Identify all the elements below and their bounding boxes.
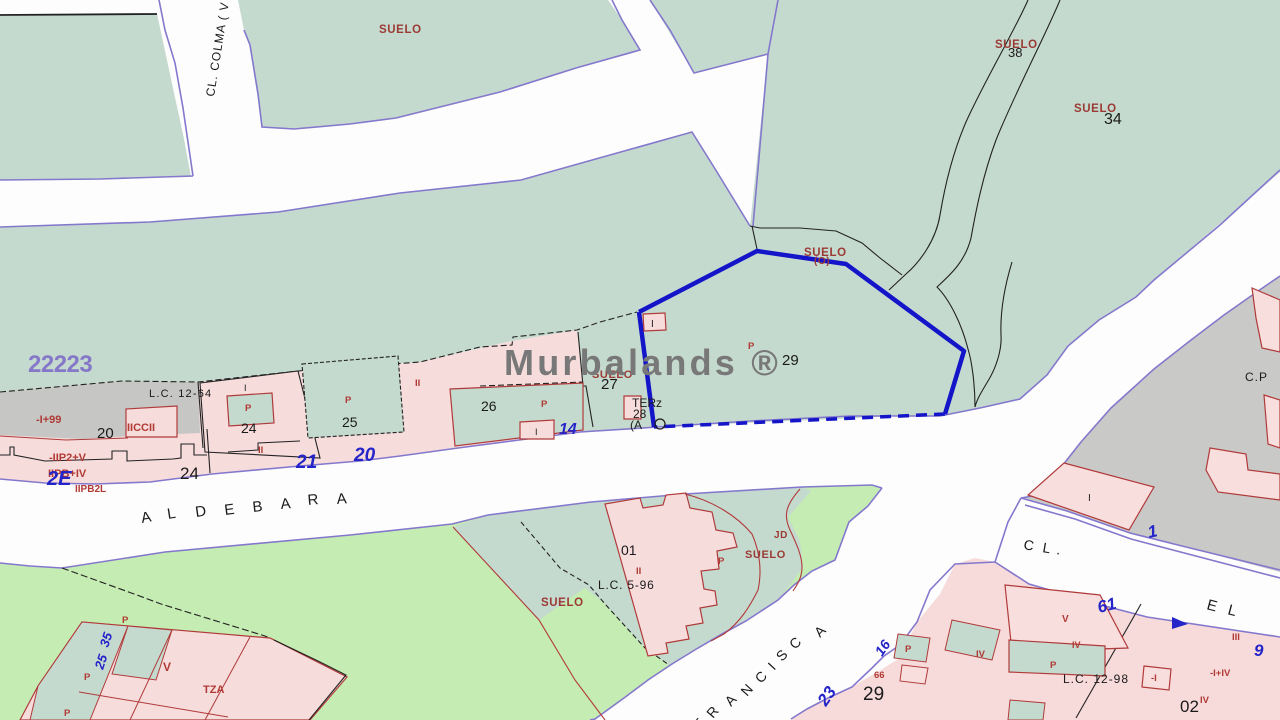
svg-text:II: II: [258, 445, 263, 456]
svg-text:TZA: TZA: [203, 684, 224, 696]
svg-text:II: II: [636, 566, 641, 577]
svg-text:P: P: [541, 399, 548, 410]
svg-text:A: A: [336, 490, 347, 508]
svg-text:02: 02: [1180, 697, 1199, 716]
svg-text:25: 25: [342, 414, 358, 430]
svg-text:SUELO: SUELO: [379, 24, 422, 36]
svg-text:P: P: [122, 615, 129, 626]
svg-text:P: P: [718, 556, 725, 567]
svg-text:SUELO: SUELO: [541, 597, 584, 609]
svg-text:IV: IV: [1200, 695, 1210, 706]
svg-text:34: 34: [1104, 111, 1122, 128]
svg-text:V: V: [163, 660, 171, 674]
svg-text:29: 29: [863, 684, 884, 705]
svg-text:20: 20: [353, 445, 376, 466]
svg-text:38: 38: [1008, 45, 1022, 60]
svg-text:V: V: [1062, 614, 1069, 625]
svg-text:L.C. 12-64: L.C. 12-64: [149, 388, 212, 400]
svg-text:P: P: [905, 644, 912, 655]
svg-text:B: B: [252, 498, 264, 516]
svg-text:I: I: [1088, 493, 1091, 504]
svg-text:P: P: [345, 395, 352, 406]
svg-text:14: 14: [559, 421, 577, 438]
svg-text:III: III: [1232, 632, 1240, 643]
svg-text:-I+IV: -I+IV: [1210, 668, 1231, 679]
svg-text:-I: -I: [1151, 673, 1157, 684]
svg-text:29: 29: [782, 352, 799, 369]
svg-text:I: I: [535, 427, 538, 437]
svg-text:2E: 2E: [46, 468, 72, 490]
svg-text:20: 20: [97, 425, 114, 442]
svg-text:P: P: [84, 672, 91, 683]
svg-text:JD: JD: [774, 530, 788, 541]
svg-text:21: 21: [295, 452, 317, 473]
svg-text:24: 24: [180, 464, 199, 483]
svg-text:Murbalands ®: Murbalands ®: [504, 342, 781, 383]
svg-text:22223: 22223: [28, 351, 92, 378]
svg-text:L.C. 5-96: L.C. 5-96: [598, 578, 655, 592]
svg-text:L.C. 12-98: L.C. 12-98: [1063, 672, 1129, 686]
svg-text:IV: IV: [1072, 640, 1081, 650]
svg-text:A: A: [280, 495, 291, 513]
svg-text:SUELO: SUELO: [745, 549, 786, 561]
svg-text:66: 66: [874, 670, 885, 681]
svg-text:I: I: [244, 383, 247, 393]
svg-text:II: II: [415, 378, 420, 389]
svg-text:IICCII: IICCII: [127, 422, 155, 434]
svg-text:P: P: [245, 403, 252, 414]
svg-text:P: P: [64, 708, 71, 719]
svg-text:-I+99: -I+99: [36, 414, 61, 426]
svg-text:I: I: [651, 319, 654, 330]
svg-text:E: E: [223, 501, 235, 519]
svg-text:24: 24: [241, 420, 257, 436]
svg-text:26: 26: [481, 398, 497, 414]
svg-text:C.P: C.P: [1245, 370, 1268, 384]
svg-text:R: R: [307, 491, 319, 509]
svg-text:01: 01: [621, 542, 637, 558]
svg-text:P: P: [1050, 660, 1057, 671]
svg-text:IV: IV: [976, 649, 986, 660]
svg-text:IIPB2L: IIPB2L: [75, 484, 106, 495]
svg-text:(A: (A: [630, 418, 642, 432]
svg-text:(O): (O): [814, 256, 830, 267]
svg-text:-IIP2+V: -IIP2+V: [49, 452, 87, 464]
svg-text:9: 9: [1254, 641, 1264, 660]
